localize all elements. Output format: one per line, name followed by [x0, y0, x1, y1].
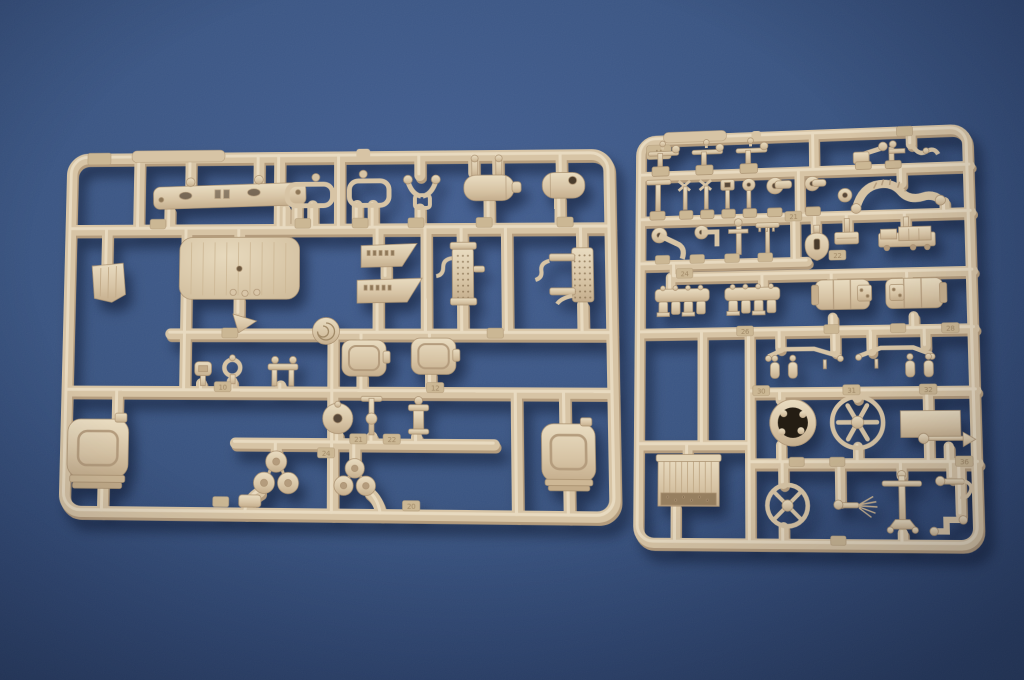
part-cross-valve-1 — [678, 181, 692, 220]
svg-text:31: 31 — [847, 387, 856, 395]
tag-24: 24 — [317, 448, 334, 458]
gate-nub — [356, 149, 370, 159]
part-cross-valve-2 — [700, 180, 714, 219]
part-ring-post — [224, 355, 240, 384]
part-tee-handle — [646, 180, 671, 221]
tag-20: 20 — [402, 501, 419, 512]
tag-26: 26 — [737, 326, 754, 336]
tag-36: 36 — [955, 456, 973, 467]
part-spade — [805, 225, 829, 261]
part-tee-post — [361, 396, 382, 435]
part-flanged-elbow-1 — [767, 177, 792, 217]
part-crank-elbow-1 — [652, 227, 684, 260]
part-pump-cylinder-2 — [885, 277, 947, 308]
svg-text:12: 12 — [431, 384, 439, 392]
svg-text:26: 26 — [741, 328, 749, 336]
part-reel-cluster-1 — [253, 451, 298, 494]
part-crank-elbow-2 — [695, 225, 717, 247]
left-sprue-runners — [63, 147, 617, 521]
tag-28: 28 — [941, 322, 959, 332]
part-reel-cluster-2 — [334, 458, 376, 495]
gate-nub — [751, 131, 761, 139]
part-tread-plate-1 — [361, 243, 417, 267]
part-cable-spool — [408, 397, 428, 435]
part-flanged-elbow-2 — [805, 176, 827, 216]
tag-12: 12 — [427, 382, 444, 392]
svg-text:36: 36 — [960, 458, 969, 467]
part-rake-arm — [756, 222, 780, 254]
part-hatch-cover-1 — [342, 340, 390, 376]
part-manifold-1 — [655, 285, 709, 317]
part-axle-tree-2 — [855, 347, 935, 377]
tag-22: 22 — [829, 250, 846, 260]
tag-21: 21 — [350, 434, 367, 444]
tag-22: 22 — [383, 434, 400, 444]
svg-text:28: 28 — [946, 324, 955, 332]
part-coiled-ring — [312, 318, 339, 345]
tag-32: 32 — [919, 384, 937, 394]
tag-21: 21 — [785, 211, 802, 221]
part-pump-cylinder-1 — [811, 279, 872, 310]
svg-text:21: 21 — [789, 213, 797, 221]
tag-31: 31 — [843, 385, 860, 395]
part-tread-plate-2 — [357, 278, 422, 303]
tag-24: 24 — [676, 268, 692, 278]
tag-30: 30 — [753, 385, 770, 395]
part-radiator-2 — [535, 248, 594, 304]
part-hatch-cover-2 — [411, 338, 460, 374]
svg-text:22: 22 — [833, 252, 841, 260]
photo-canvas: 10 12 21 22 24 20 — [0, 0, 1024, 680]
sprue-gate-tab — [132, 150, 225, 162]
svg-text:32: 32 — [924, 386, 933, 394]
part-air-tank-2 — [542, 172, 585, 198]
part-fuel-can-right — [541, 418, 596, 492]
part-mud-flap — [91, 263, 126, 302]
part-axle-tree-1 — [765, 348, 843, 378]
svg-text:20: 20 — [407, 503, 416, 511]
svg-text:24: 24 — [322, 450, 330, 458]
part-flat-plate — [900, 410, 961, 437]
svg-text:30: 30 — [757, 387, 765, 395]
part-fuel-can-left — [66, 413, 129, 489]
part-roof-panel — [179, 237, 300, 299]
part-domed-cap — [323, 401, 353, 434]
part-round-valve — [742, 178, 756, 217]
part-ring-drum — [770, 399, 817, 446]
part-z-pipe — [930, 516, 968, 536]
part-manifold-2 — [725, 283, 780, 315]
svg-text:22: 22 — [388, 436, 396, 444]
part-radiator-1 — [436, 242, 485, 305]
right-sprue: H — [630, 121, 990, 559]
part-window-frame-2 — [349, 170, 389, 205]
left-sprue: 10 12 21 22 24 20 — [56, 146, 624, 527]
tag-10: 10 — [214, 382, 231, 392]
svg-text:10: 10 — [218, 384, 226, 392]
sprue-gate-tab — [664, 130, 727, 143]
svg-text:21: 21 — [354, 436, 362, 444]
part-rail-block — [239, 495, 261, 507]
part-jack-stand — [882, 471, 923, 534]
corner-tag — [88, 153, 111, 165]
part-box-valve — [721, 179, 736, 218]
part-corrugated-crate — [656, 454, 721, 506]
svg-text:24: 24 — [681, 270, 689, 278]
